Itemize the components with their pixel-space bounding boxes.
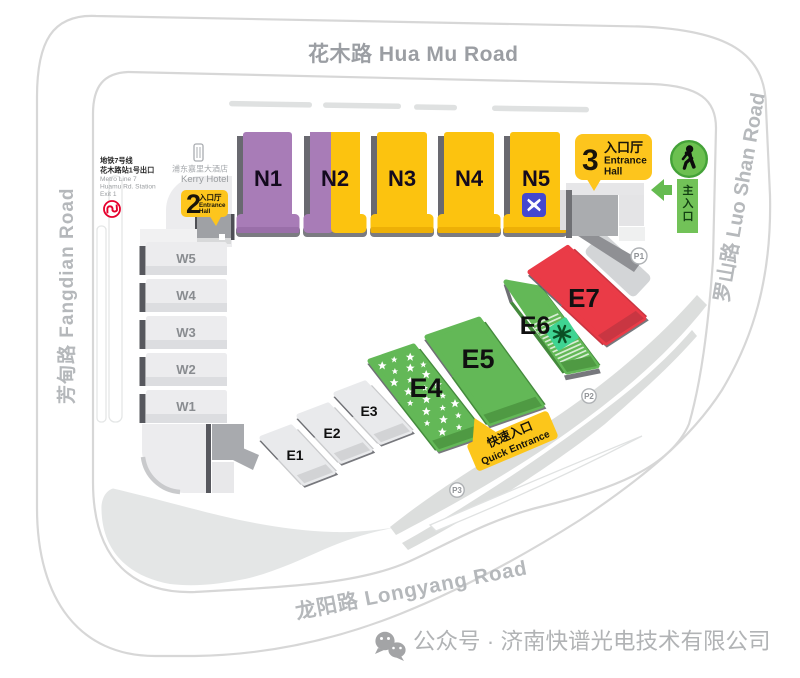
svg-text:E4: E4 [409,373,442,403]
svg-text:W3: W3 [176,325,196,340]
svg-text:P1: P1 [634,251,645,261]
svg-text:W4: W4 [176,288,196,303]
svg-text:地铁7号线: 地铁7号线 [100,156,134,165]
svg-text:P3: P3 [452,486,462,495]
svg-text:E3: E3 [360,403,377,419]
svg-text:主: 主 [683,183,694,197]
svg-text:Kerry Hotel: Kerry Hotel [181,174,229,185]
svg-text:Exit 1: Exit 1 [100,191,117,198]
svg-text:W1: W1 [176,399,196,414]
svg-text:Huamu Rd. Station: Huamu Rd. Station [100,184,156,191]
svg-text:W2: W2 [176,362,196,377]
svg-text:3: 3 [582,144,599,177]
svg-text:入口厅: 入口厅 [198,193,222,202]
svg-text:P2: P2 [584,392,594,401]
svg-text:浦东嘉里大酒店: 浦东嘉里大酒店 [172,164,228,174]
svg-text:E1: E1 [286,447,303,463]
svg-text:Entrance: Entrance [604,156,647,167]
svg-text:W5: W5 [176,251,196,266]
svg-text:N5: N5 [522,166,550,191]
svg-text:E6: E6 [520,312,551,340]
svg-text:N3: N3 [388,166,416,191]
svg-text:花木路 Hua Mu Road: 花木路 Hua Mu Road [308,42,519,66]
svg-text:Hall: Hall [604,167,623,178]
svg-text:E2: E2 [323,425,340,441]
svg-text:芳甸路 Fangdian Road: 芳甸路 Fangdian Road [55,187,78,404]
svg-text:入: 入 [683,197,694,210]
svg-text:N2: N2 [321,166,349,191]
svg-text:N4: N4 [455,166,484,191]
svg-text:口: 口 [683,210,694,223]
svg-text:E7: E7 [568,283,600,313]
svg-text:入口厅: 入口厅 [604,140,643,155]
svg-text:公众号 · 济南快谱光电技术有限公司: 公众号 · 济南快谱光电技术有限公司 [413,629,771,654]
svg-text:Metro Line 7: Metro Line 7 [100,176,137,183]
svg-text:Hall: Hall [199,208,211,215]
svg-text:花木路站1号出口: 花木路站1号出口 [100,166,154,175]
svg-text:E5: E5 [461,344,494,374]
svg-text:N1: N1 [254,166,282,191]
